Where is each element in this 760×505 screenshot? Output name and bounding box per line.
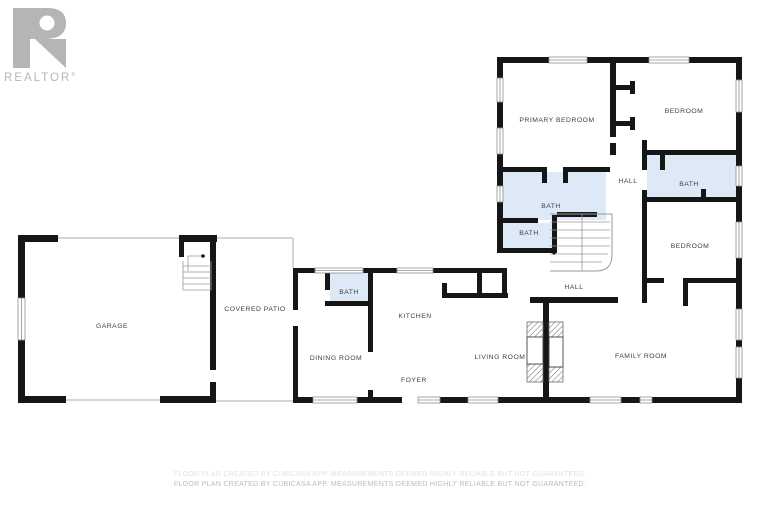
wall [642,150,738,155]
room-label-garage: GARAGE [96,323,128,330]
room-label-bath: BATH [679,181,699,188]
wall [701,189,706,197]
wall [497,248,557,253]
wall [563,167,610,172]
room-label-bedroom: BEDROOM [671,243,710,250]
wall [325,301,373,306]
fireplace-hatch [549,367,563,382]
fireplace-box [527,337,543,364]
wall [542,167,547,183]
wall [293,326,298,403]
room-label-primary-bedroom: PRIMARY BEDROOM [519,117,594,124]
wall [563,167,568,183]
fireplace-hatch [549,322,563,337]
wall [160,396,216,403]
stair-direction-arrow [188,256,202,271]
wall [293,268,298,310]
wall [18,396,66,403]
wall [503,218,538,223]
wall [652,397,742,403]
wall [498,397,590,403]
room-label-living-room: LIVING ROOM [475,354,526,361]
room-label-hall: HALL [564,284,583,291]
room-label-covered-patio: COVERED PATIO [224,306,285,313]
wall [621,397,640,403]
wall [293,397,313,403]
room-label-kitchen: KITCHEN [398,313,431,320]
bath-area [330,272,370,302]
stairs-outline [550,214,612,271]
floorplan-canvas: REALTOR® PRIMARY BEDROOMBEDROOMHALLBATHB… [0,0,760,505]
disclaimer-echo: FLOOR PLAN CREATED BY CUBICASA APP. MEAS… [0,471,760,478]
room-label-bedroom: BEDROOM [665,108,704,115]
wall [357,397,402,403]
fireplace-box [549,337,563,367]
wall [368,268,373,352]
wall [642,140,647,170]
room-label-foyer: FOYER [401,377,427,384]
room-label-hall: HALL [618,178,637,185]
wall [552,215,557,253]
wall [630,117,635,130]
wall [660,150,665,170]
wall [642,278,664,283]
stair-newel-dot [552,251,555,254]
wall [642,197,738,202]
wall [630,81,635,94]
wall [497,167,547,172]
wall [610,57,616,137]
room-label-bath: BATH [541,203,561,210]
wall [642,190,647,303]
wall [440,397,468,403]
wall [683,278,738,283]
wall [543,297,549,403]
wall [368,390,373,397]
wall [179,235,184,257]
room-label-dining-room: DINING ROOM [310,355,362,362]
wall [442,293,508,298]
wall [683,278,688,306]
disclaimer-text: FLOOR PLAN CREATED BY CUBICASA APP. MEAS… [0,481,760,488]
room-label-bath: BATH [519,230,539,237]
fireplace-hatch [527,364,543,382]
wall [442,283,447,295]
floor-plan-svg: PRIMARY BEDROOMBEDROOMHALLBATHBEDROOMBAT… [0,0,760,505]
wall [610,143,616,155]
fireplace-hatch [527,322,543,337]
wall [210,237,216,370]
wall [210,382,216,403]
wall [497,57,742,63]
room-label-family-room: FAMILY ROOM [615,353,667,360]
room-label-bath: BATH [339,289,359,296]
wall [502,268,507,298]
stair-arrow-dot [201,254,205,258]
wall [477,268,482,295]
